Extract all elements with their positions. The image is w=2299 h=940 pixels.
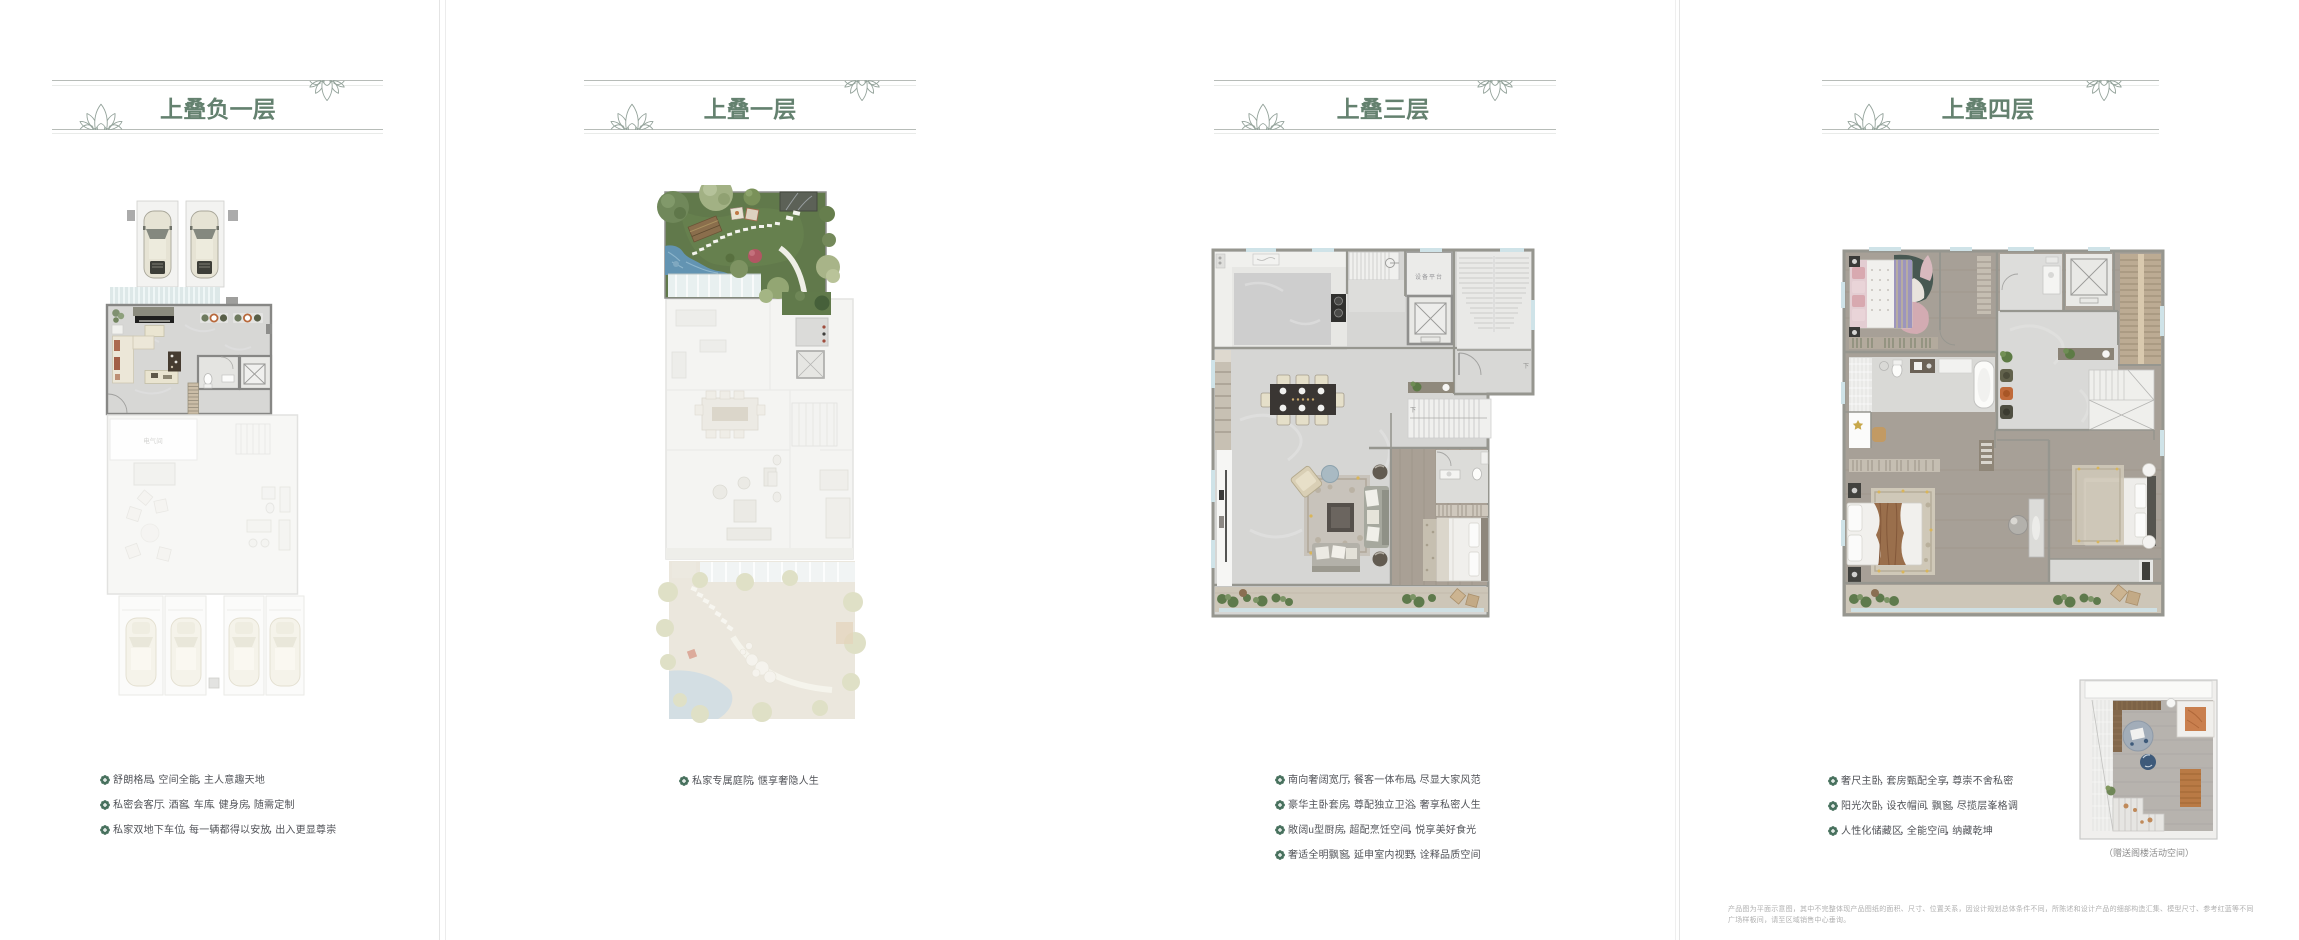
svg-text:设备平台: 设备平台 bbox=[1415, 273, 1443, 281]
svg-text:下: 下 bbox=[1523, 363, 1529, 370]
svg-text:下: 下 bbox=[1410, 407, 1416, 414]
svg-text:电气间: 电气间 bbox=[143, 436, 163, 445]
